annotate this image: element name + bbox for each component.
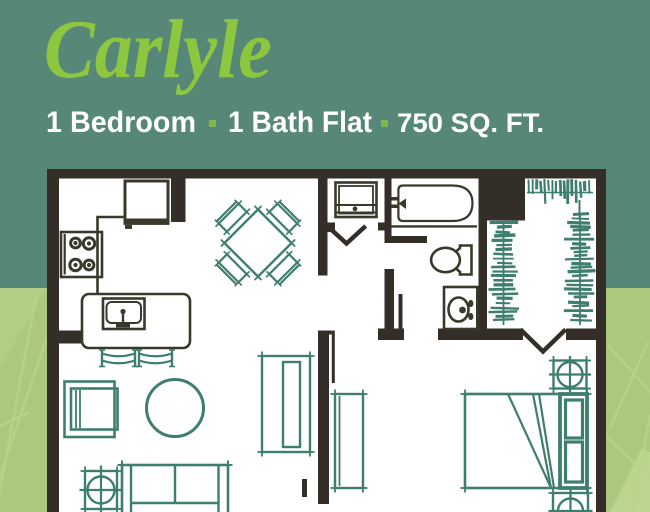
svg-text:1 Bedroom: 1 Bedroom — [46, 106, 196, 139]
svg-text:Carlyle: Carlyle — [44, 3, 272, 96]
svg-text:1 Bath Flat: 1 Bath Flat — [228, 106, 372, 139]
svg-text:750 SQ. FT.: 750 SQ. FT. — [397, 108, 544, 138]
